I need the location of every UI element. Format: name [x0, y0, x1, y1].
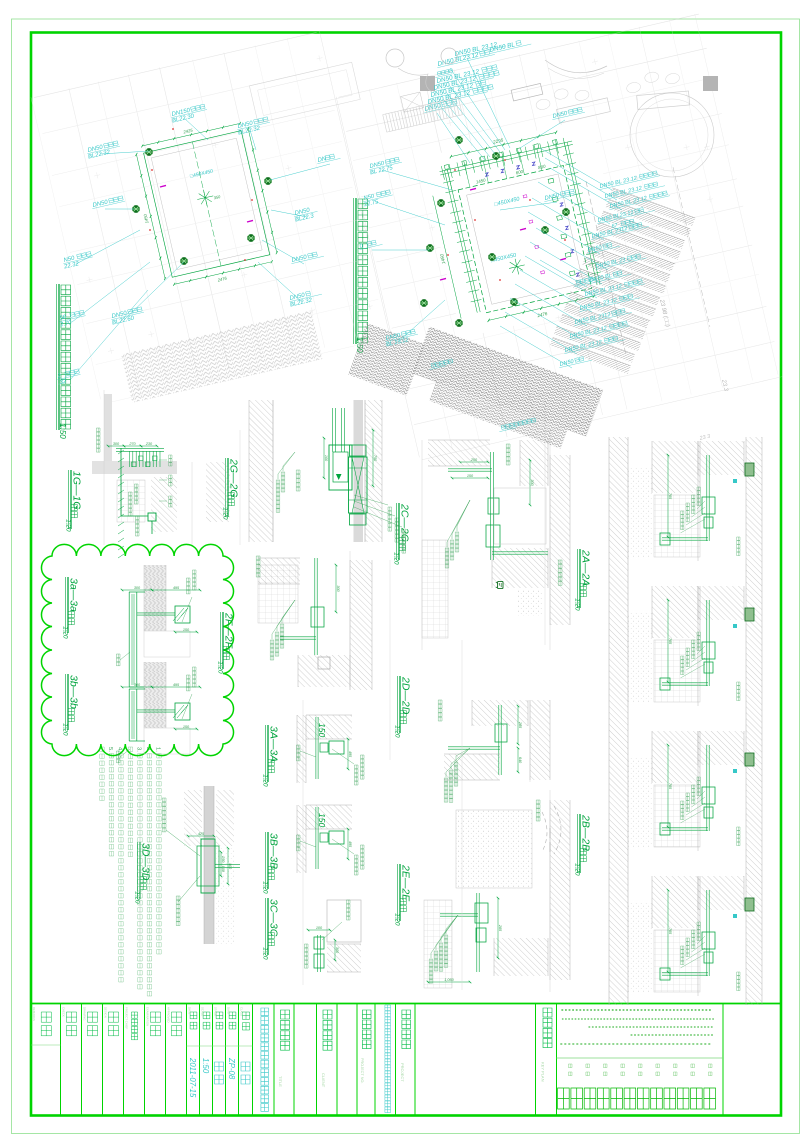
svg-text:785: 785 — [668, 783, 672, 790]
svg-text:2B—2B: 2B—2B — [580, 814, 592, 851]
svg-text:300: 300 — [336, 585, 340, 592]
svg-text:2A—2A: 2A—2A — [580, 549, 592, 586]
svg-text:300: 300 — [335, 947, 339, 954]
svg-text:SCALE: SCALE — [201, 1007, 205, 1016]
svg-text:APPROVED: APPROVED — [167, 1007, 171, 1023]
svg-text:250...100: 250...100 — [221, 855, 225, 873]
svg-text:DATE: DATE — [188, 1007, 192, 1014]
svg-text:3C—3C: 3C—3C — [268, 899, 280, 937]
svg-text:150: 150 — [317, 723, 327, 737]
svg-text:2E—2E: 2E—2E — [400, 864, 412, 902]
svg-text:CLIENT: CLIENT — [321, 1073, 326, 1088]
svg-text:STAGE: STAGE — [214, 1007, 218, 1016]
svg-text:PROJECT CHIEF: PROJECT CHIEF — [125, 1007, 129, 1029]
svg-text:2C—2C: 2C—2C — [399, 503, 411, 542]
svg-text:CLASS: CLASS — [240, 1007, 244, 1016]
svg-text:785: 785 — [668, 493, 672, 500]
svg-text:1G—1G: 1G—1G — [71, 471, 83, 510]
svg-text:785: 785 — [668, 638, 672, 645]
svg-text:2D—2D: 2D—2D — [400, 676, 412, 715]
svg-text:3B—3B: 3B—3B — [268, 833, 280, 869]
svg-text:CHECK: CHECK — [62, 1007, 66, 1017]
svg-text:150: 150 — [183, 725, 190, 729]
svg-text:EXAMINATION: EXAMINATION — [146, 1007, 150, 1026]
svg-text:REMARKS: REMARKS — [32, 1007, 36, 1021]
svg-text:425: 425 — [198, 832, 205, 836]
svg-text:495: 495 — [173, 586, 180, 590]
svg-text:495: 495 — [348, 841, 352, 848]
svg-text:150: 150 — [183, 628, 190, 632]
svg-text:400: 400 — [228, 863, 232, 870]
svg-text:1.: 1. — [154, 747, 160, 752]
svg-text:TITLE: TITLE — [278, 1076, 283, 1087]
svg-text:2F—2F: 2F—2F — [223, 612, 235, 649]
svg-text:750: 750 — [373, 455, 377, 462]
svg-text:495: 495 — [348, 751, 352, 758]
svg-text:DESIGN: DESIGN — [104, 1007, 108, 1018]
svg-text:4.: 4. — [116, 747, 122, 752]
svg-text:230: 230 — [145, 442, 153, 446]
svg-text:3b—3b: 3b—3b — [68, 675, 80, 709]
svg-text:3A—3A: 3A—3A — [268, 726, 280, 762]
svg-text:KEY PLAN: KEY PLAN — [541, 1062, 546, 1082]
svg-text:285: 285 — [518, 721, 522, 729]
svg-text:300: 300 — [530, 479, 534, 486]
svg-text:5.: 5. — [107, 747, 113, 752]
svg-text:100: 100 — [324, 455, 328, 462]
svg-text:PROJECT: PROJECT — [400, 1063, 405, 1082]
svg-text:785: 785 — [668, 928, 672, 935]
svg-text:270: 270 — [128, 442, 136, 446]
svg-text:300: 300 — [134, 683, 141, 687]
svg-text:100: 100 — [316, 926, 323, 930]
svg-text:1:50: 1:50 — [201, 1058, 210, 1074]
svg-text:285: 285 — [498, 924, 502, 932]
svg-text:ZP-08: ZP-08 — [227, 1057, 236, 1080]
svg-text:150: 150 — [317, 813, 327, 827]
svg-text:3D—3D: 3D—3D — [140, 843, 152, 881]
svg-text:PROJECT NO.: PROJECT NO. — [360, 1058, 364, 1083]
svg-text:3.: 3. — [135, 747, 141, 752]
svg-text:1,060: 1,060 — [444, 978, 454, 982]
svg-text:495: 495 — [173, 683, 180, 687]
svg-text:3a—3a: 3a—3a — [68, 578, 80, 612]
svg-text:300: 300 — [134, 586, 141, 590]
svg-text:300: 300 — [113, 442, 120, 446]
svg-text:640: 640 — [518, 757, 522, 764]
svg-text:DWG: DWG — [227, 1007, 231, 1014]
svg-text:2011-07-15: 2011-07-15 — [188, 1057, 197, 1098]
svg-text:DRAWING: DRAWING — [83, 1007, 87, 1020]
svg-text:150: 150 — [467, 474, 474, 478]
